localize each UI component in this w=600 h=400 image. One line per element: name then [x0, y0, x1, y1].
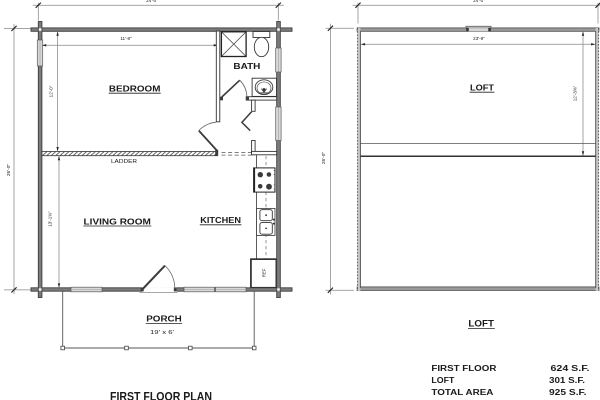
svg-text:301 S.F.: 301 S.F.	[549, 376, 585, 385]
svg-text:KITCHEN: KITCHEN	[200, 216, 241, 225]
svg-text:LIVING ROOM: LIVING ROOM	[84, 217, 152, 226]
svg-text:FIRST FLOOR: FIRST FLOOR	[431, 364, 496, 373]
svg-text:LOFT: LOFT	[468, 319, 494, 329]
svg-text:13'-1⅝": 13'-1⅝"	[48, 211, 53, 227]
svg-text:11'-8": 11'-8"	[120, 36, 132, 41]
svg-text:LOFT: LOFT	[470, 83, 494, 92]
svg-text:BATH: BATH	[233, 62, 260, 71]
svg-text:LADDER: LADDER	[111, 159, 137, 165]
svg-text:24'-0": 24'-0"	[146, 0, 158, 3]
svg-text:REF: REF	[261, 268, 266, 277]
svg-text:26'-0": 26'-0"	[321, 152, 327, 165]
svg-text:925 S.F.: 925 S.F.	[549, 388, 587, 397]
svg-text:24'-0": 24'-0"	[473, 0, 485, 3]
svg-text:12'-0": 12'-0"	[48, 85, 53, 97]
svg-text:PORCH: PORCH	[146, 315, 182, 324]
svg-text:624 S.F.: 624 S.F.	[551, 364, 590, 373]
svg-text:TOTAL AREA: TOTAL AREA	[431, 388, 493, 397]
svg-text:26'-0": 26'-0"	[6, 164, 12, 177]
svg-text:BEDROOM: BEDROOM	[109, 85, 161, 94]
svg-text:FIRST FLOOR PLAN: FIRST FLOOR PLAN	[110, 392, 212, 400]
svg-text:23'-9": 23'-9"	[473, 36, 485, 41]
svg-text:12'-3⅝": 12'-3⅝"	[573, 85, 578, 101]
svg-text:19' x 6': 19' x 6'	[150, 330, 174, 336]
svg-text:LOFT: LOFT	[431, 376, 454, 385]
